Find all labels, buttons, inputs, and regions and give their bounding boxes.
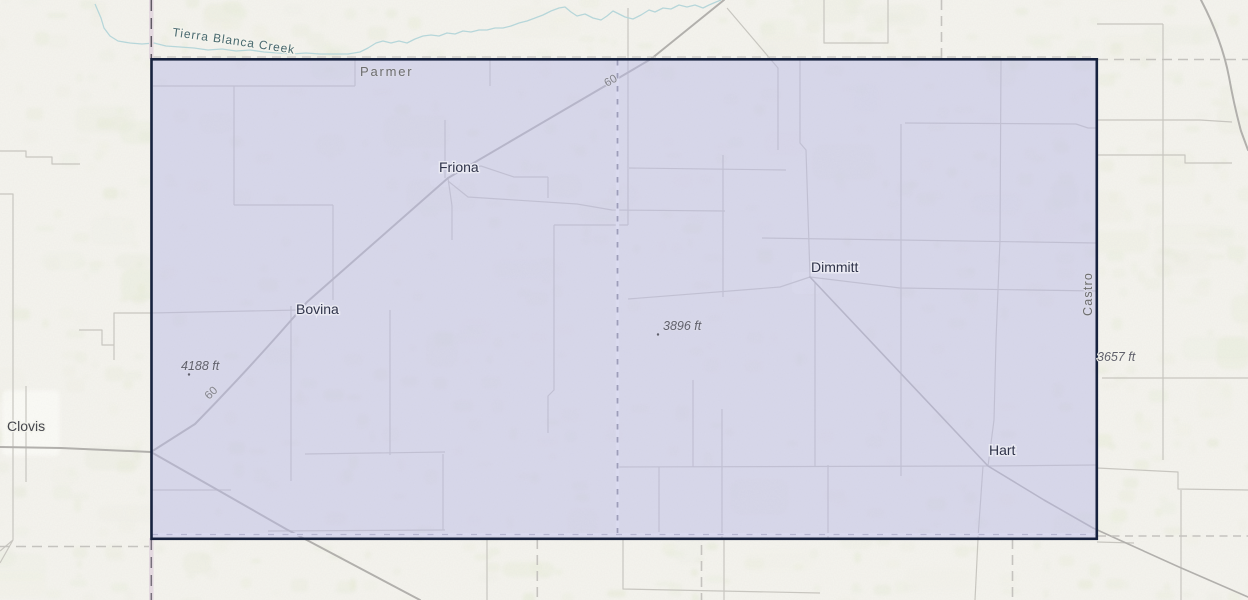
svg-text:Castro: Castro xyxy=(1081,272,1095,316)
svg-text:Friona: Friona xyxy=(439,159,479,175)
svg-text:Hart: Hart xyxy=(989,442,1016,458)
svg-text:3896 ft: 3896 ft xyxy=(663,319,702,333)
svg-text:Clovis: Clovis xyxy=(7,418,45,434)
svg-text:Parmer: Parmer xyxy=(360,64,413,79)
svg-text:4188 ft: 4188 ft xyxy=(181,359,220,373)
svg-text:Bovina: Bovina xyxy=(296,301,339,317)
svg-text:Dimmitt: Dimmitt xyxy=(811,259,859,275)
svg-text:3657 ft: 3657 ft xyxy=(1097,350,1136,364)
